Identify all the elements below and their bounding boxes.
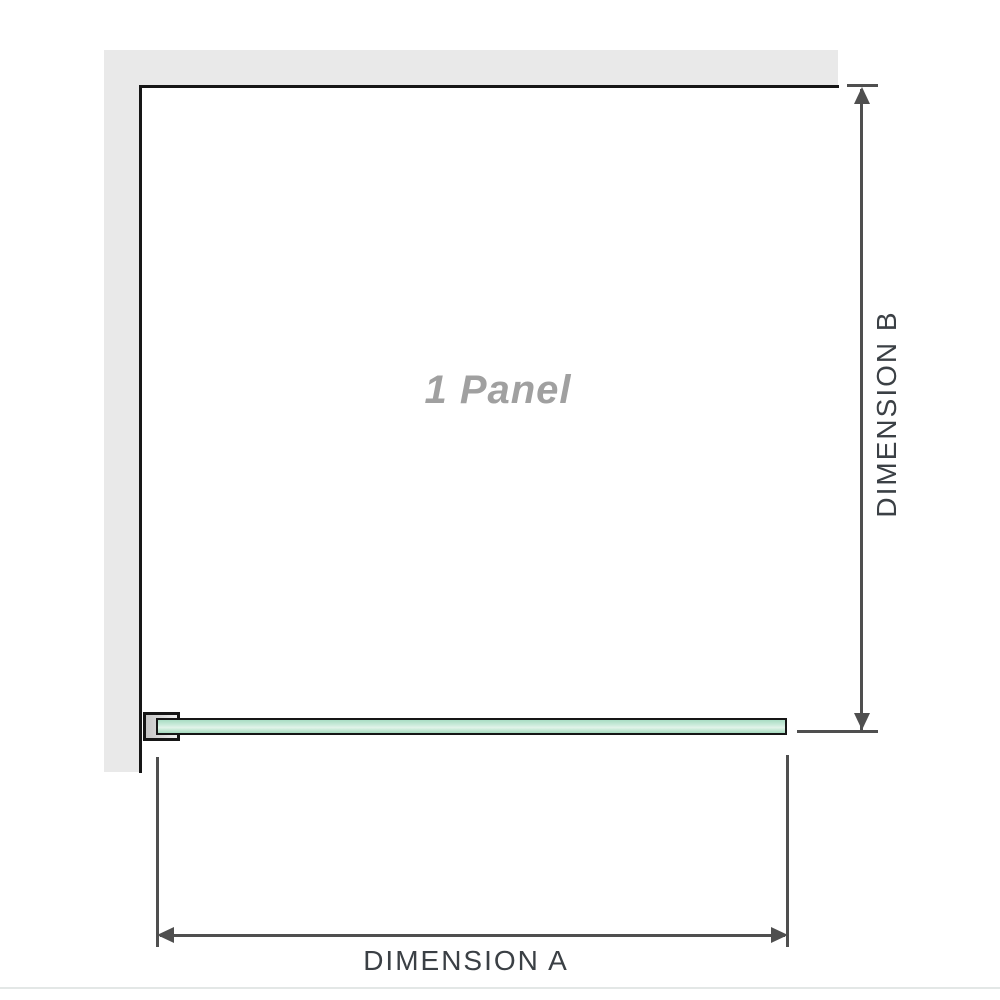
- dimension-b-tick-bottom: [797, 730, 878, 733]
- dimension-a-extension-right: [786, 755, 789, 947]
- panel-count-label: 1 Panel: [338, 368, 658, 413]
- arrowhead-down-icon: [854, 713, 870, 730]
- glass-panel: [156, 718, 787, 735]
- panel-edge-top: [139, 85, 839, 88]
- wall-top: [104, 50, 838, 85]
- dimension-a-extension-left: [156, 757, 159, 947]
- dimension-b-line: [860, 89, 863, 730]
- wall-left: [104, 50, 140, 772]
- arrowhead-up-icon: [854, 87, 870, 104]
- bottom-divider: [0, 987, 1000, 989]
- dimension-a-line: [160, 934, 785, 937]
- arrowhead-left-icon: [157, 927, 174, 943]
- panel-diagram: 1 Panel DIMENSION B DIMENSION A: [0, 0, 1000, 1000]
- panel-edge-left: [139, 85, 142, 773]
- dimension-a-label: DIMENSION A: [316, 946, 616, 976]
- arrowhead-right-icon: [771, 927, 788, 943]
- dimension-b-label: DIMENSION B: [873, 284, 901, 544]
